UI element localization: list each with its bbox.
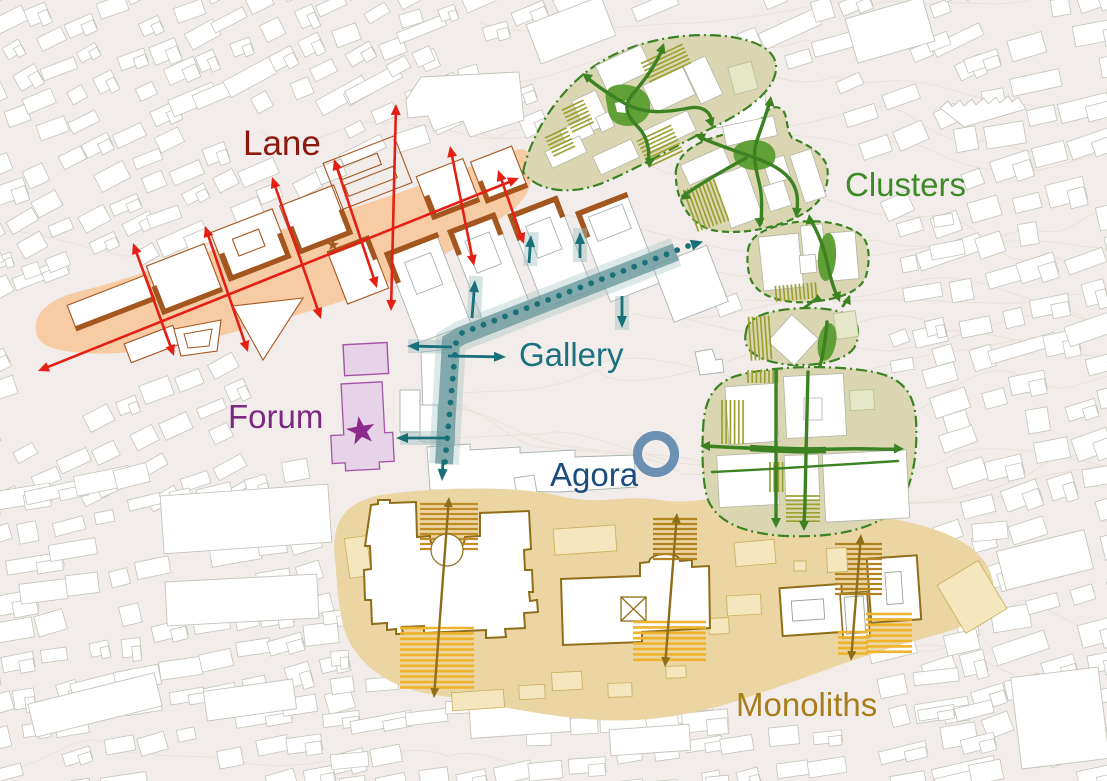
svg-text:Gallery: Gallery: [519, 336, 624, 373]
svg-text:Lane: Lane: [243, 124, 321, 163]
svg-text:Forum: Forum: [228, 398, 323, 435]
svg-text:Monoliths: Monoliths: [736, 686, 877, 723]
svg-text:Clusters: Clusters: [845, 166, 966, 203]
svg-text:Agora: Agora: [550, 456, 639, 493]
